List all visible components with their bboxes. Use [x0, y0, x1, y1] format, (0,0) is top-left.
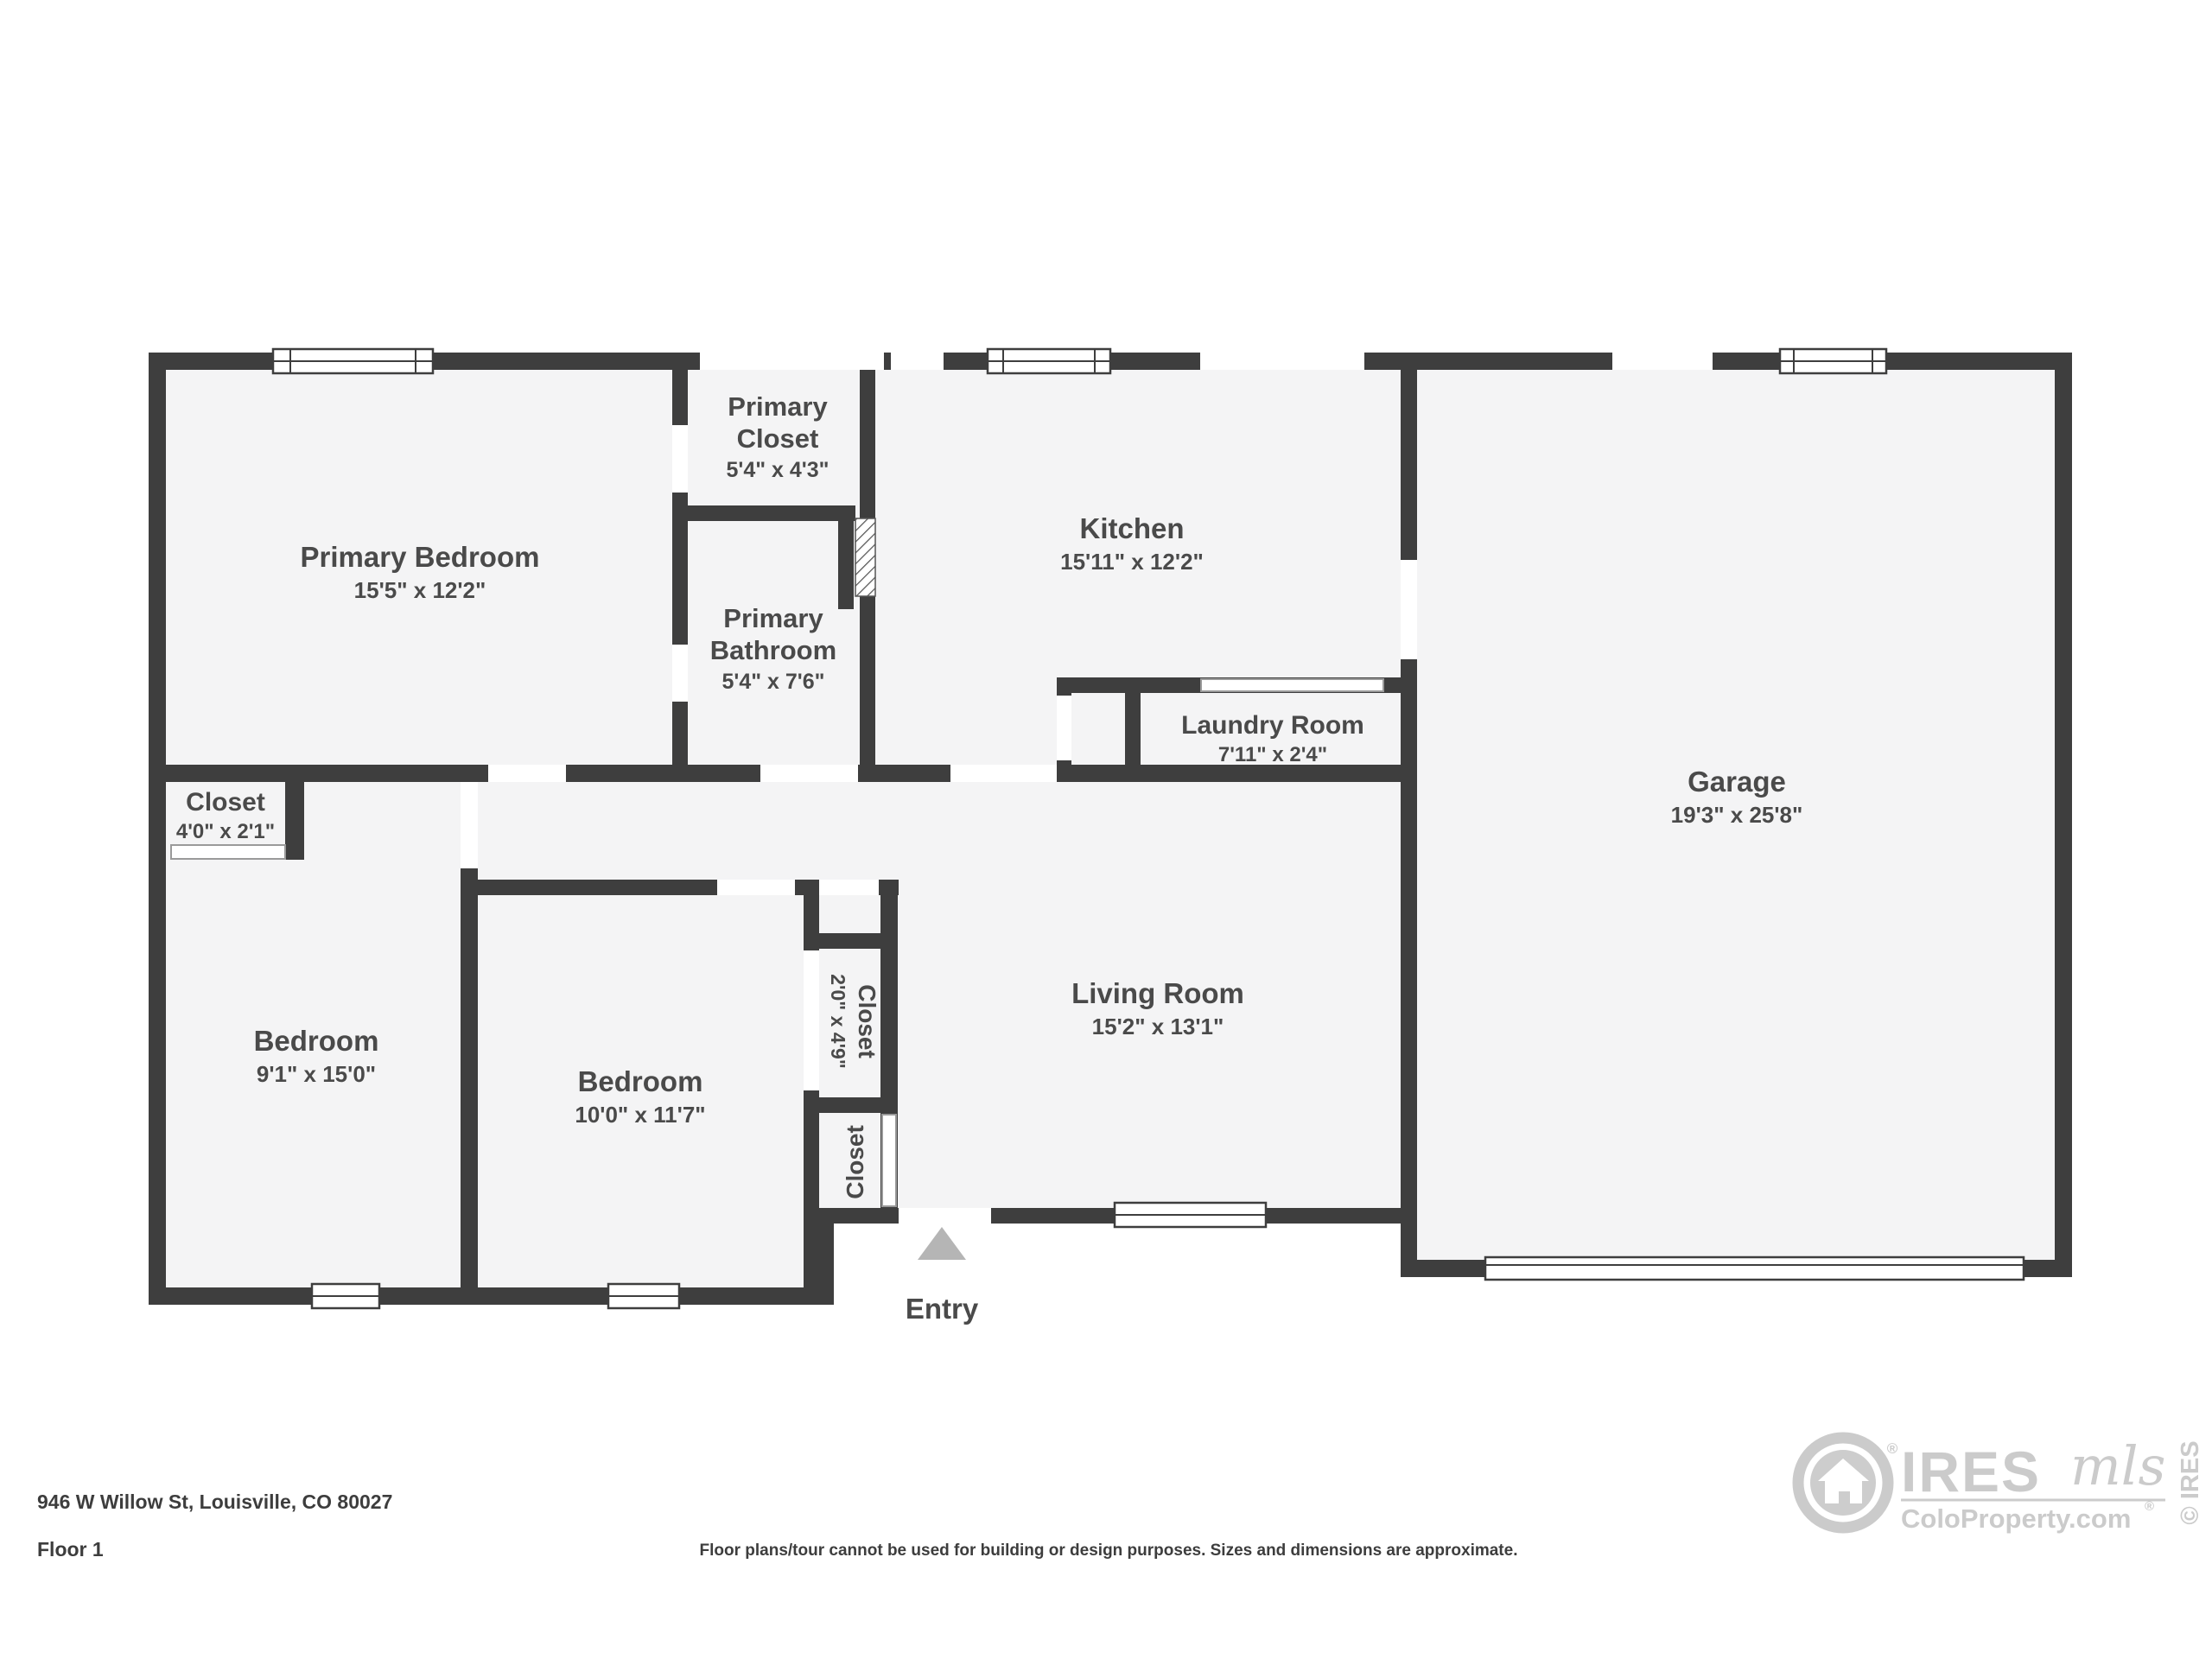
- primary-bathroom-door: [672, 645, 688, 702]
- room-dims: 5'4" x 4'3": [726, 458, 829, 482]
- wall-segment: [1401, 353, 1417, 1277]
- wall-segment: [860, 596, 875, 782]
- garage-door-opening: [1401, 560, 1417, 659]
- wall-segment: [672, 505, 855, 521]
- hall-closet-door: [171, 845, 285, 859]
- room-label-hall-closet: Closet 4'0" x 2'1": [176, 788, 275, 843]
- wall-segment: [285, 782, 304, 860]
- window: [1780, 349, 1886, 373]
- wall-segment: [838, 505, 854, 609]
- room-name: Closet: [737, 423, 819, 454]
- room-dims: 15'5" x 12'2": [354, 577, 486, 603]
- floor-area: [157, 361, 2063, 1296]
- floor-label: Floor 1: [37, 1538, 104, 1560]
- registered-mark: ®: [2145, 1499, 2154, 1514]
- kitchen-living-opening: [950, 765, 1057, 782]
- room-dims: 7'11" x 2'4": [1218, 743, 1327, 766]
- entry-label: Entry: [906, 1293, 979, 1325]
- closet-a-door: [804, 950, 819, 1090]
- room-name: Closet: [854, 984, 880, 1058]
- room-dims: 15'11" x 12'2": [1060, 549, 1204, 575]
- room-dims: 2'0" x 4'9": [827, 974, 849, 1069]
- copyright-text: © IRES: [2177, 1440, 2204, 1524]
- room-label-closet-b: Closet: [842, 1125, 868, 1199]
- room-name: Primary Bedroom: [301, 541, 540, 573]
- wall-segment: [149, 353, 166, 1305]
- room-name: Garage: [1688, 766, 1786, 798]
- room-dims: 19'3" x 25'8": [1671, 802, 1803, 828]
- wall-segment: [149, 1287, 834, 1305]
- wall-opening: [1612, 353, 1713, 370]
- entry-marker: Entry: [906, 1227, 979, 1325]
- window: [312, 1284, 379, 1308]
- bedroom-west-door: [461, 782, 478, 868]
- copyright-ires-vertical: © IRES: [2177, 1440, 2204, 1524]
- room-name: Closet: [186, 788, 265, 817]
- primary-closet-door: [672, 425, 688, 493]
- room-label-garage: Garage 19'3" x 25'8": [1671, 766, 1803, 828]
- wall-opening: [891, 353, 944, 370]
- room-name: Bathroom: [710, 635, 836, 665]
- hatched-pocket-door: [855, 518, 875, 596]
- wall-segment: [804, 1097, 898, 1113]
- entry-opening: [899, 1208, 991, 1224]
- bathroom-hall-door: [760, 765, 858, 782]
- room-label-kitchen: Kitchen 15'11" x 12'2": [1060, 512, 1204, 575]
- wall-segment: [1125, 691, 1141, 769]
- room-name: Closet: [842, 1125, 868, 1199]
- room-name: Primary: [723, 603, 823, 633]
- window: [1115, 1203, 1266, 1227]
- room-dims: 10'0" x 11'7": [575, 1102, 705, 1128]
- niche-opening: [819, 880, 879, 895]
- room-dims: 4'0" x 2'1": [176, 820, 275, 843]
- room-name: Bedroom: [254, 1025, 379, 1057]
- floorplan-page: { "floorplan": { "rooms": { "primary_bed…: [0, 0, 2212, 1659]
- ires-house-icon: ®: [1798, 1438, 1898, 1528]
- wall-segment: [860, 353, 875, 518]
- room-name: Laundry Room: [1181, 711, 1364, 740]
- room-name: Primary: [728, 391, 828, 422]
- wall-segment: [672, 353, 688, 782]
- laundry-sliding-door: [1201, 679, 1383, 691]
- room-label-bedroom-mid: Bedroom 10'0" x 11'7": [575, 1065, 705, 1128]
- entry-triangle-icon: [918, 1227, 966, 1260]
- room-dims: 9'1" x 15'0": [257, 1061, 376, 1087]
- footer: 946 W Willow St, Louisville, CO 80027 Fl…: [37, 1491, 1517, 1560]
- ires-wordmark: IRES: [1901, 1440, 2041, 1503]
- room-label-primary-bathroom: Primary Bathroom 5'4" x 7'6": [710, 603, 836, 694]
- garage-door: [1485, 1257, 2024, 1280]
- address-text: 946 W Willow St, Louisville, CO 80027: [37, 1491, 392, 1513]
- room-name: Living Room: [1071, 977, 1244, 1009]
- room-label-bedroom-west: Bedroom 9'1" x 15'0": [254, 1025, 379, 1087]
- window: [608, 1284, 679, 1308]
- ires-logo: ® IRES mls ColoProperty.com ® © IRES: [1798, 1434, 2204, 1534]
- mls-script: mls: [2070, 1434, 2165, 1497]
- bedroom-mid-door: [717, 880, 795, 895]
- window: [988, 349, 1110, 373]
- closet-b-door: [882, 1115, 896, 1206]
- wall-segment: [804, 933, 898, 949]
- room-label-living-room: Living Room 15'2" x 13'1": [1071, 977, 1244, 1039]
- wall-opening: [1200, 353, 1364, 370]
- room-dims: 5'4" x 7'6": [721, 670, 824, 694]
- primary-bedroom-door: [488, 765, 566, 782]
- wall-segment: [2055, 353, 2072, 1277]
- wall-opening: [700, 353, 884, 370]
- laundry-window: [1057, 696, 1071, 760]
- room-label-primary-closet: Primary Closet 5'4" x 4'3": [726, 391, 829, 482]
- window: [273, 349, 433, 373]
- room-name: Kitchen: [1079, 512, 1184, 544]
- disclaimer-text: Floor plans/tour cannot be used for buil…: [700, 1541, 1518, 1560]
- registered-mark: ®: [1887, 1440, 1898, 1457]
- room-dims: 15'2" x 13'1": [1092, 1014, 1224, 1039]
- room-name: Bedroom: [578, 1065, 703, 1097]
- coloproperty-text: ColoProperty.com: [1901, 1503, 2131, 1534]
- floorplan-canvas: Primary Bedroom 15'5" x 12'2" Primary Cl…: [0, 0, 2212, 1659]
